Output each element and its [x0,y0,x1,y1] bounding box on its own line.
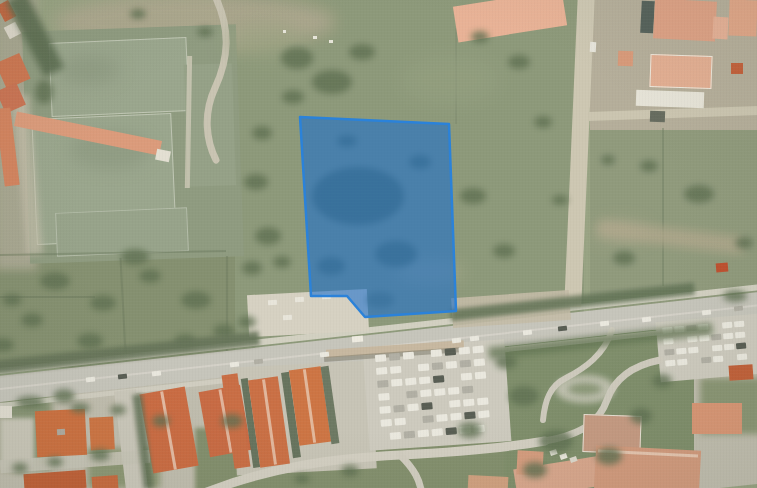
aerial-map-view [0,0,757,488]
selected-parcel-polygon[interactable] [300,117,456,317]
parcel-overlay-layer [0,0,757,488]
parcel-overlay-svg [0,0,757,488]
